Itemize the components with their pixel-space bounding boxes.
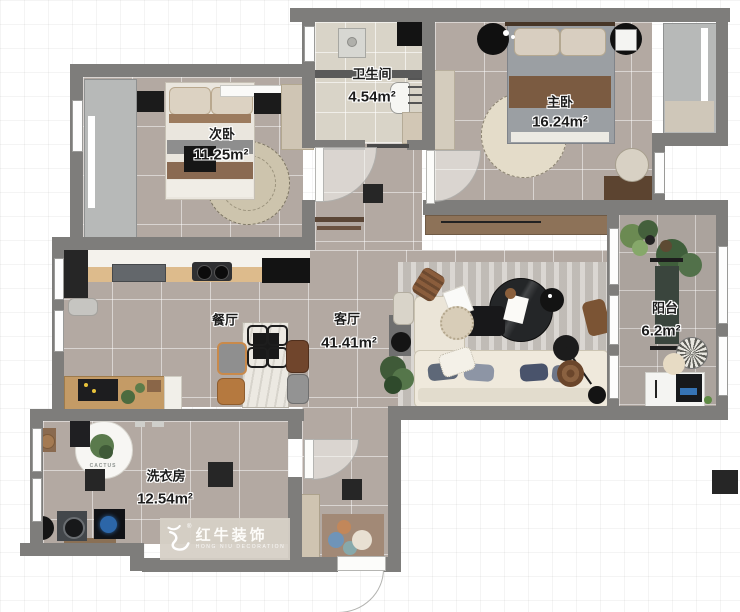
kitchen-basin (68, 298, 98, 316)
room-area-living-room: 41.41m² (321, 335, 377, 352)
wall-second-bottom (52, 237, 315, 250)
room-area-balcony: 6.2m² (641, 323, 680, 340)
room-label-second-bedroom: 次卧 (209, 124, 235, 143)
window-bath-left (304, 26, 315, 62)
master-bed-pillow-right (560, 28, 606, 56)
brown-swirl-pillow (557, 360, 584, 387)
second-bed-pillow-left (169, 87, 211, 115)
window-balcony-divider-1 (609, 228, 619, 285)
kitchen-sink (112, 264, 166, 282)
window-balcony-divider-3 (609, 355, 619, 399)
master-bed-pillow-left (514, 28, 560, 56)
balcony-bench-top-bar (650, 258, 683, 262)
balcony-mop (655, 380, 657, 398)
dining-wire-chair (247, 325, 268, 346)
room-area-master-bedroom: 16.24m² (532, 114, 588, 131)
dining-wire-chair (247, 347, 268, 368)
coffee-table-small (540, 288, 564, 312)
window-laundry-left-2 (32, 478, 42, 522)
hallway-console (312, 217, 364, 222)
hanging-chair-blanket (663, 353, 685, 375)
registered-mark: ® (187, 524, 191, 530)
floor-lamp-base (588, 386, 606, 404)
balcony-pot-brown (660, 240, 672, 252)
column-hallway (363, 184, 383, 203)
laundry-chair-black (70, 421, 90, 447)
room-label-living-room: 客厅 (334, 309, 360, 328)
living-plant (384, 376, 402, 394)
tv-screen-line (441, 221, 541, 223)
laundry-door (304, 439, 314, 479)
wall-right-outer-upper (716, 8, 728, 146)
balcony-palm (678, 253, 702, 277)
watermark-brand-en: HONG NIU DECORATION (196, 545, 286, 550)
window-balcony-divider-2 (609, 295, 619, 345)
coffee-table-bowl (505, 288, 516, 299)
wall-second-right-lower (302, 200, 315, 250)
washing-machine-display (680, 388, 697, 395)
wall-laundry-bottom (20, 543, 142, 556)
washing-machine-1-door (63, 517, 85, 539)
nightstand-lamp-dot (503, 30, 509, 36)
wall-bath-bottom-right (407, 140, 422, 150)
armchair-white (393, 292, 414, 325)
wall-laundry-right-upper (288, 409, 302, 439)
balcony-plant-pot (645, 235, 655, 245)
wall-laundry-top (42, 409, 304, 421)
room-label-bathroom: 卫生间 (352, 64, 391, 83)
second-bed-foot (167, 180, 253, 197)
balcony-small-plant (704, 396, 712, 404)
dining-chair-gray-right (287, 374, 309, 404)
room-area-laundry-room: 12.54m² (137, 491, 193, 508)
coffee-table-dot (548, 294, 552, 298)
watermark-brand: 红牛装饰 (196, 528, 286, 543)
entry-cabinet (300, 494, 320, 558)
stove-burner (197, 265, 212, 280)
washing-machine-2-glow (100, 516, 117, 533)
second-bed-brown-strip (169, 114, 251, 123)
column-laundry-b (208, 462, 233, 487)
room-label-master-bedroom: 主卧 (547, 92, 573, 111)
dining-wire-chair (267, 325, 288, 346)
laundry-faucet (135, 421, 145, 427)
desk-peg-dot (92, 389, 96, 393)
master-nightstand-left (477, 23, 509, 55)
doormat-blob (337, 520, 351, 534)
wall-second-left (70, 64, 83, 244)
watermark-banner: ® 红牛装饰 HONG NIU DECORATION (160, 518, 290, 560)
window-dining-left-1 (54, 258, 64, 300)
desk-plant (121, 390, 135, 404)
laundry-faucet (152, 421, 164, 427)
nightstand-left (137, 91, 164, 112)
floor-plan: CACTUS (0, 0, 740, 612)
entry-door (337, 556, 386, 571)
column-entry (342, 479, 362, 500)
sofa-pillow (519, 363, 548, 382)
nightstand-right (254, 93, 281, 114)
wardrobe-handle-line (88, 116, 95, 208)
room-area-bathroom: 4.54m² (348, 89, 396, 106)
second-bedroom-door (315, 147, 324, 202)
wall-top-main (290, 8, 730, 22)
wall-second-top (70, 64, 315, 77)
column-balcony-corner (712, 470, 738, 494)
nightstand-lamp (615, 29, 637, 51)
tv-cabinet (425, 215, 609, 235)
sofa-round-pillow (440, 306, 474, 340)
stove-burner (214, 265, 229, 280)
window-balcony-right-2 (718, 336, 728, 396)
laundry-table-plant (99, 445, 113, 459)
hallway-console-shelf (317, 226, 361, 230)
desk-peg-dot (84, 383, 88, 387)
kitchen-corner-cabinet (62, 250, 88, 298)
room-label-laundry-room: 洗衣房 (146, 466, 185, 485)
wall-bedroom-bottom (423, 200, 728, 215)
sofa-back-line (418, 388, 603, 402)
window-balcony-right-1 (718, 246, 728, 324)
wall-entry-right (388, 406, 401, 572)
doormat-blob (352, 530, 372, 550)
window-bedroom-right (654, 152, 665, 194)
wardrobe-master-beige (665, 101, 714, 132)
shower-drain (347, 37, 357, 47)
side-cabinet-lamp (391, 332, 411, 352)
nightstand-lamp-dot (511, 35, 515, 39)
fridge (262, 258, 310, 283)
master-bedroom-door (426, 150, 435, 204)
doormat-blob (328, 532, 344, 548)
dining-chair-gray-left (217, 342, 247, 375)
entry-door-swing (338, 569, 384, 612)
room-label-balcony: 阳台 (652, 298, 678, 317)
master-desk-chair (615, 148, 649, 182)
dining-chair-brown-right (286, 340, 309, 373)
column-laundry-a (85, 469, 105, 491)
wall-under-banner (142, 558, 304, 572)
desk-white-appliance (164, 376, 182, 410)
desk-plant (135, 383, 145, 393)
room-label-dining-room: 餐厅 (212, 310, 238, 329)
wall-bath-right (422, 8, 435, 150)
dining-wire-chair (267, 347, 288, 368)
room-area-second-bedroom: 11.25m² (193, 147, 248, 164)
dining-chair-tan-left (217, 378, 245, 405)
window-laundry-left-1 (32, 428, 42, 472)
window-dining-left-2 (54, 310, 64, 352)
window-second-left (72, 100, 83, 152)
wall-entry-bottom-left (288, 557, 338, 572)
desk-box (147, 380, 161, 392)
wall-living-bottom (388, 406, 728, 420)
bathroom-black-cabinet (397, 22, 422, 46)
master-bed-foot (511, 132, 609, 142)
